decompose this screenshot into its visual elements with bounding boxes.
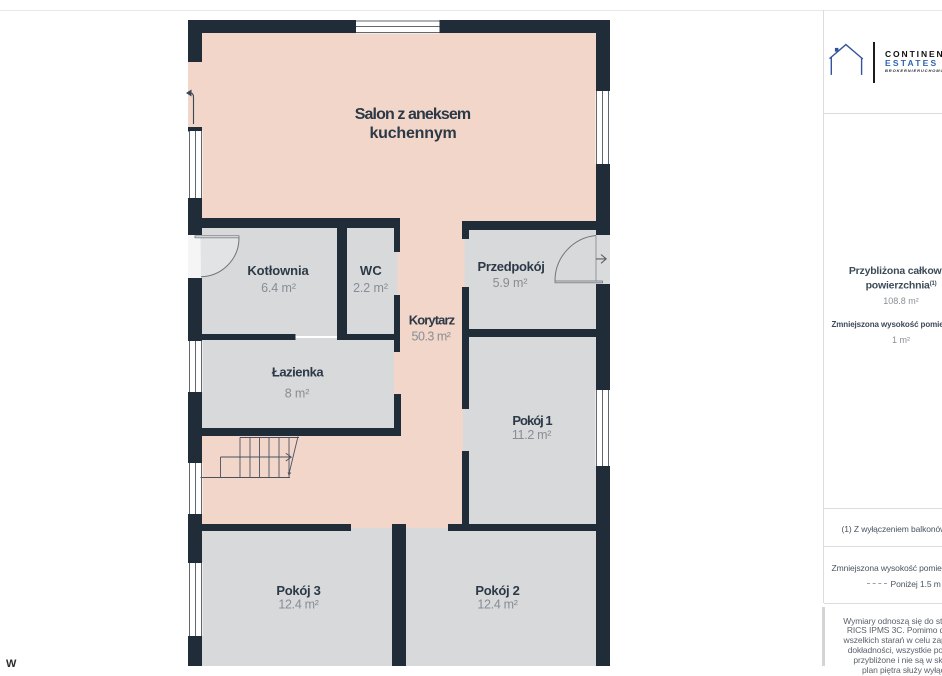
svg-text:Łazienka: Łazienka [272, 365, 325, 380]
svg-text:12.4 m²: 12.4 m² [477, 598, 517, 612]
svg-text:8 m²: 8 m² [285, 387, 310, 401]
svg-text:Salon z aneksem: Salon z aneksem [355, 106, 471, 123]
svg-text:WC: WC [360, 263, 383, 278]
svg-text:5.9 m²: 5.9 m² [493, 276, 528, 290]
svg-text:12.4 m²: 12.4 m² [278, 598, 318, 612]
svg-text:11.2 m²: 11.2 m² [512, 428, 551, 442]
svg-text:50.3 m²: 50.3 m² [412, 330, 451, 344]
svg-text:Pokój 2: Pokój 2 [475, 583, 519, 598]
svg-text:2.2 m²: 2.2 m² [353, 281, 388, 295]
svg-text:Pokój 3: Pokój 3 [276, 583, 320, 598]
svg-text:Przedpokój: Przedpokój [477, 259, 544, 274]
svg-text:6.4 m²: 6.4 m² [261, 281, 296, 295]
svg-text:kuchennym: kuchennym [369, 125, 456, 142]
svg-text:Pokój 1: Pokój 1 [512, 413, 552, 428]
svg-text:Kotłownia: Kotłownia [247, 263, 309, 278]
svg-text:Korytarz: Korytarz [409, 313, 456, 328]
